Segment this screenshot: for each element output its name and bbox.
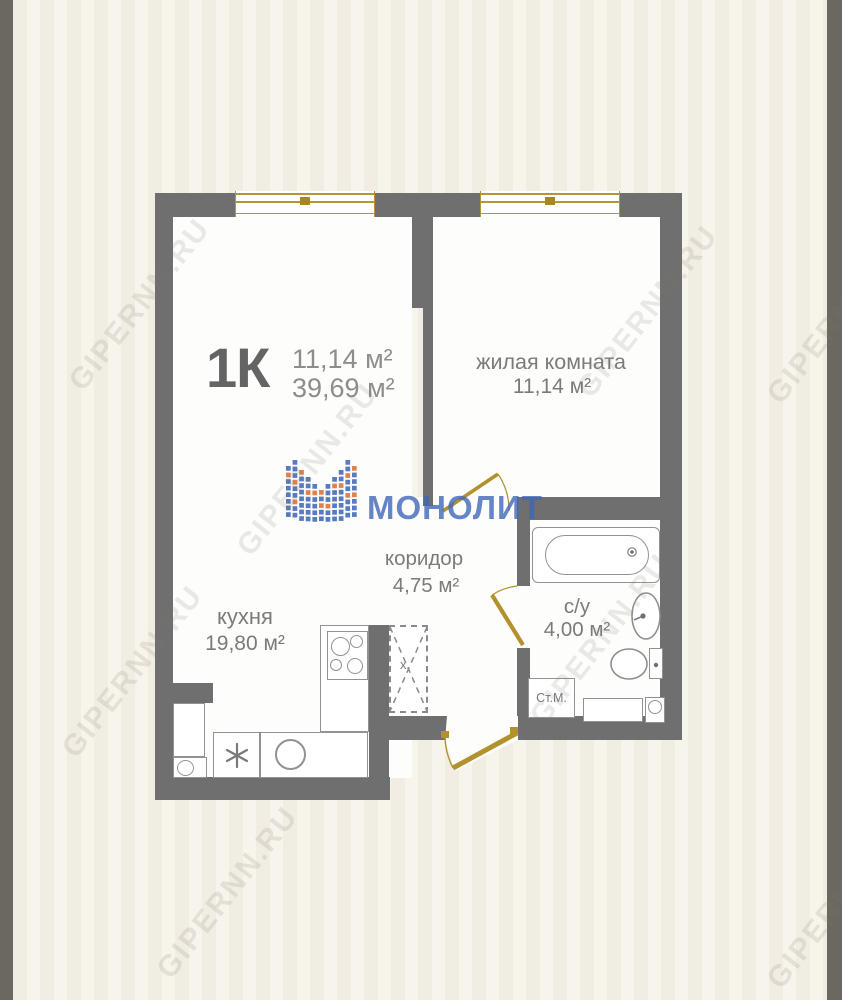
window-line [236, 193, 374, 195]
wall [369, 625, 389, 778]
window-line [481, 213, 619, 215]
right-frame-bar [827, 0, 842, 1000]
vent-shaft [389, 625, 428, 713]
wall [412, 217, 433, 308]
window-latch [300, 197, 310, 205]
toilet-tank [649, 648, 663, 679]
burner-icon [350, 635, 363, 648]
window-line [481, 193, 619, 195]
burner-icon [330, 659, 342, 671]
wall [155, 683, 213, 703]
site-watermark: GIPERNN.RU [150, 800, 305, 985]
kitchen-area: 19,80 м² [205, 632, 285, 656]
floor-plan-canvas: Ст.М. [0, 0, 842, 1000]
corridor-area: 4,75 м² [393, 574, 460, 598]
vent-mark: x [400, 657, 407, 672]
window [480, 191, 620, 217]
burner-icon [347, 658, 363, 674]
burner-icon [331, 637, 350, 656]
wall [369, 716, 447, 740]
entrance-door-arc [445, 737, 453, 768]
wall [155, 777, 390, 800]
bathroom-cabinet [583, 698, 643, 722]
kitchen-label: кухня [217, 604, 273, 630]
counter-divider [259, 732, 261, 778]
monolit-logo-text: МОНОЛИТ [367, 489, 543, 527]
bathroom-door-opening [515, 586, 532, 648]
cabinet-knob-icon [177, 760, 194, 776]
plan-type-label: 1К [206, 340, 269, 396]
plan-area-small: 11,14 м² [292, 344, 393, 375]
window-latch [545, 197, 555, 205]
bathroom-box-knob-icon [648, 700, 662, 714]
kitchen-sink-icon [275, 739, 306, 770]
corridor-label: коридор [385, 547, 463, 571]
entrance-door-leaf [453, 733, 517, 768]
window [235, 191, 375, 217]
bathroom-label: с/у [564, 595, 590, 619]
left-frame-bar [0, 0, 13, 1000]
window-line [236, 213, 374, 215]
entrance-opening [445, 716, 518, 771]
fridge [173, 703, 205, 757]
wall [423, 308, 433, 506]
